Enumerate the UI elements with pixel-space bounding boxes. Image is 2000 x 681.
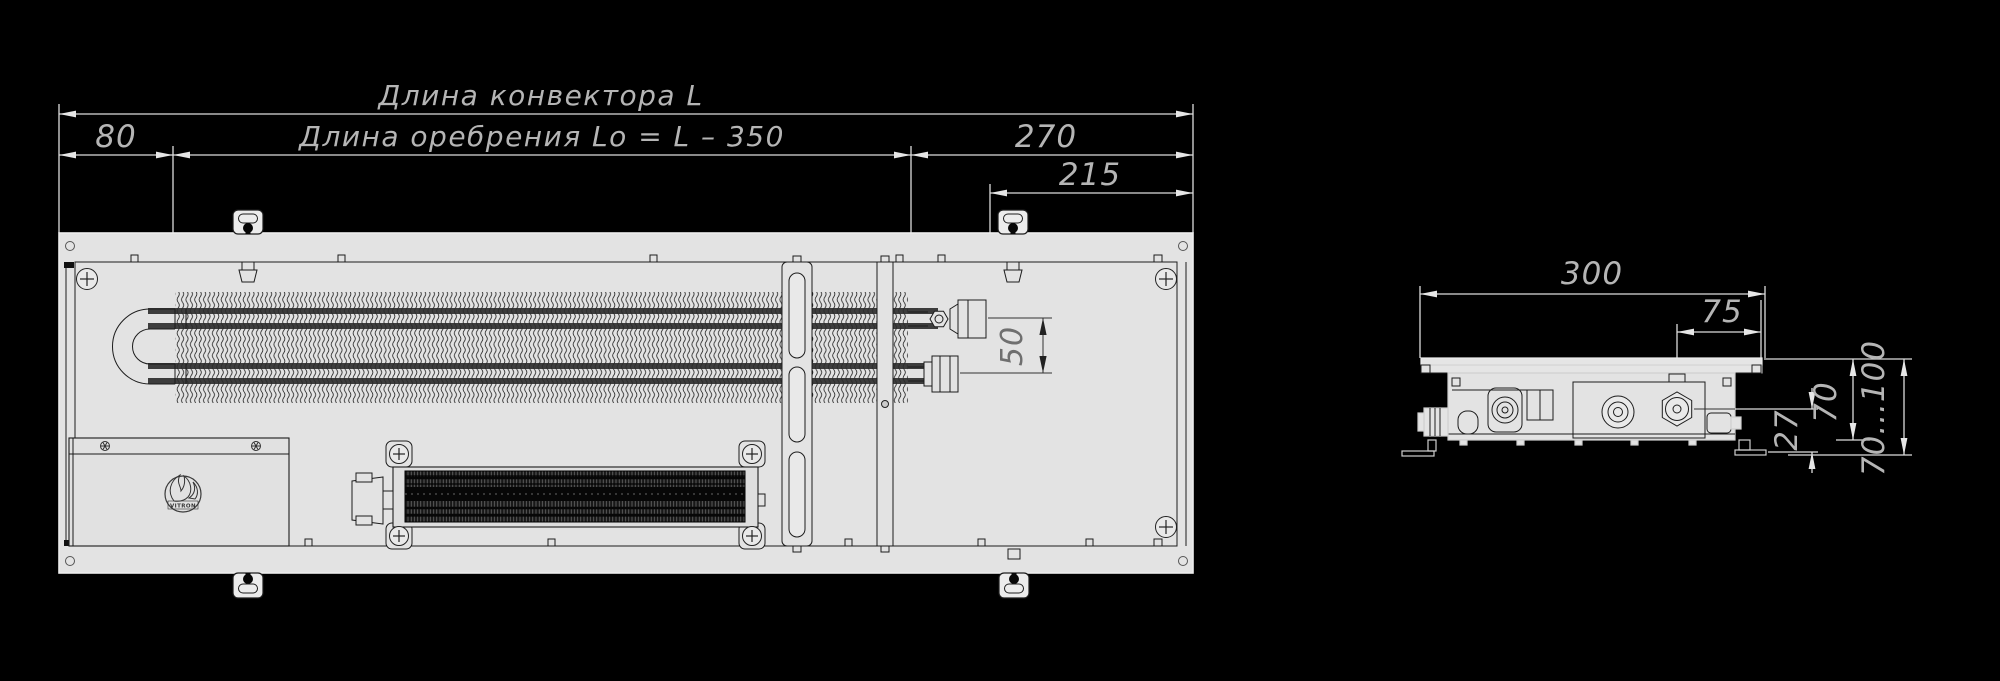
mounting-bracket — [233, 573, 263, 598]
screw-icon — [390, 527, 409, 546]
convector-technical-drawing: Длина конвектора L 80 Длина оребрения Lo… — [0, 0, 2000, 681]
dim-label-27: 27 — [1769, 409, 1805, 450]
convector-tub — [1418, 373, 1741, 445]
dim-label-300: 300 — [1561, 256, 1623, 292]
screw-icon — [77, 269, 98, 290]
dim-label-75: 75 — [1701, 294, 1742, 330]
dim-label-70-100: 70...100 — [1856, 340, 1892, 476]
dim-label-80: 80 — [95, 119, 136, 155]
slotted-bracket — [782, 256, 812, 552]
terminal — [1458, 411, 1478, 434]
pipe-end — [1602, 396, 1634, 428]
screw-icon — [743, 445, 762, 464]
screw-icon — [390, 445, 409, 464]
corner-hole — [66, 557, 75, 566]
logo-text: VITRON — [170, 504, 196, 510]
dim-label-finning: Длина оребрения Lo = L – 350 — [297, 120, 785, 153]
narrow-bracket — [877, 256, 893, 552]
heat-exchanger — [113, 292, 939, 403]
screw-icon — [743, 527, 762, 546]
top-flange — [1421, 358, 1762, 373]
screw-icon — [1156, 517, 1177, 538]
dim-label-50: 50 — [995, 326, 1030, 366]
drawing-canvas: Длина конвектора L 80 Длина оребрения Lo… — [0, 0, 2000, 681]
control-box: VITRON — [69, 438, 289, 546]
corner-hole — [66, 242, 75, 251]
dim-label-length: Длина конвектора L — [376, 79, 703, 112]
dim-label-270: 270 — [1015, 119, 1077, 155]
corner-hole — [1179, 242, 1188, 251]
screw-icon — [1156, 269, 1177, 290]
dim-label-70: 70 — [1808, 381, 1844, 422]
corner-hole — [1179, 557, 1188, 566]
dim-label-215: 215 — [1059, 157, 1121, 193]
drain-fitting — [1707, 413, 1731, 433]
